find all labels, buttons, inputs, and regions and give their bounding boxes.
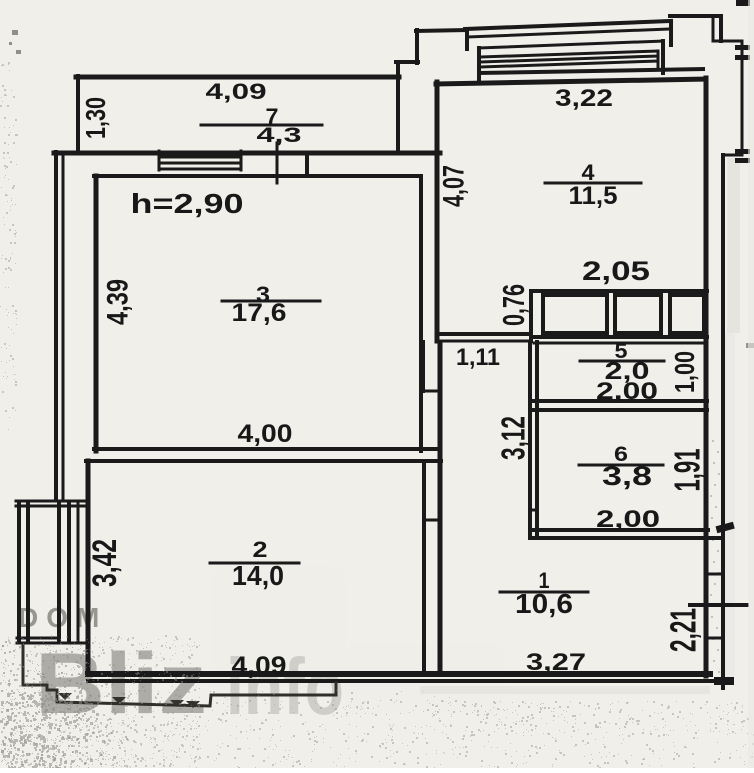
svg-text:h=2,90: h=2,90 <box>131 188 244 219</box>
svg-text:14,0: 14,0 <box>232 560 284 591</box>
svg-text:4,39: 4,39 <box>103 279 135 325</box>
svg-text:1,11: 1,11 <box>456 345 500 371</box>
svg-text:4,3: 4,3 <box>257 124 302 147</box>
svg-text:2: 2 <box>253 537 268 562</box>
svg-text:4,09: 4,09 <box>206 79 267 104</box>
svg-text:4,07: 4,07 <box>439 165 471 207</box>
svg-text:11,5: 11,5 <box>569 182 618 210</box>
svg-text:4,00: 4,00 <box>238 420 293 448</box>
svg-text:2,21: 2,21 <box>662 608 703 652</box>
svg-text:4,09: 4,09 <box>232 652 287 680</box>
svg-text:3,12: 3,12 <box>496 416 533 460</box>
svg-text:2,00: 2,00 <box>596 379 658 405</box>
svg-text:1,91: 1,91 <box>666 449 707 492</box>
svg-text:10,6: 10,6 <box>515 588 573 619</box>
svg-text:1,30: 1,30 <box>80 97 111 139</box>
svg-text:2,00: 2,00 <box>596 507 660 533</box>
svg-text:3,22: 3,22 <box>555 86 613 112</box>
svg-text:DOM: DOM <box>18 602 107 633</box>
svg-text:1,00: 1,00 <box>669 351 700 393</box>
svg-text:3,8: 3,8 <box>602 461 652 491</box>
svg-text:3,42: 3,42 <box>86 539 124 587</box>
svg-text:0,76: 0,76 <box>497 284 531 326</box>
svg-text:17,6: 17,6 <box>232 299 287 327</box>
svg-text:3,27: 3,27 <box>526 650 586 676</box>
svg-text:2,05: 2,05 <box>582 256 650 286</box>
